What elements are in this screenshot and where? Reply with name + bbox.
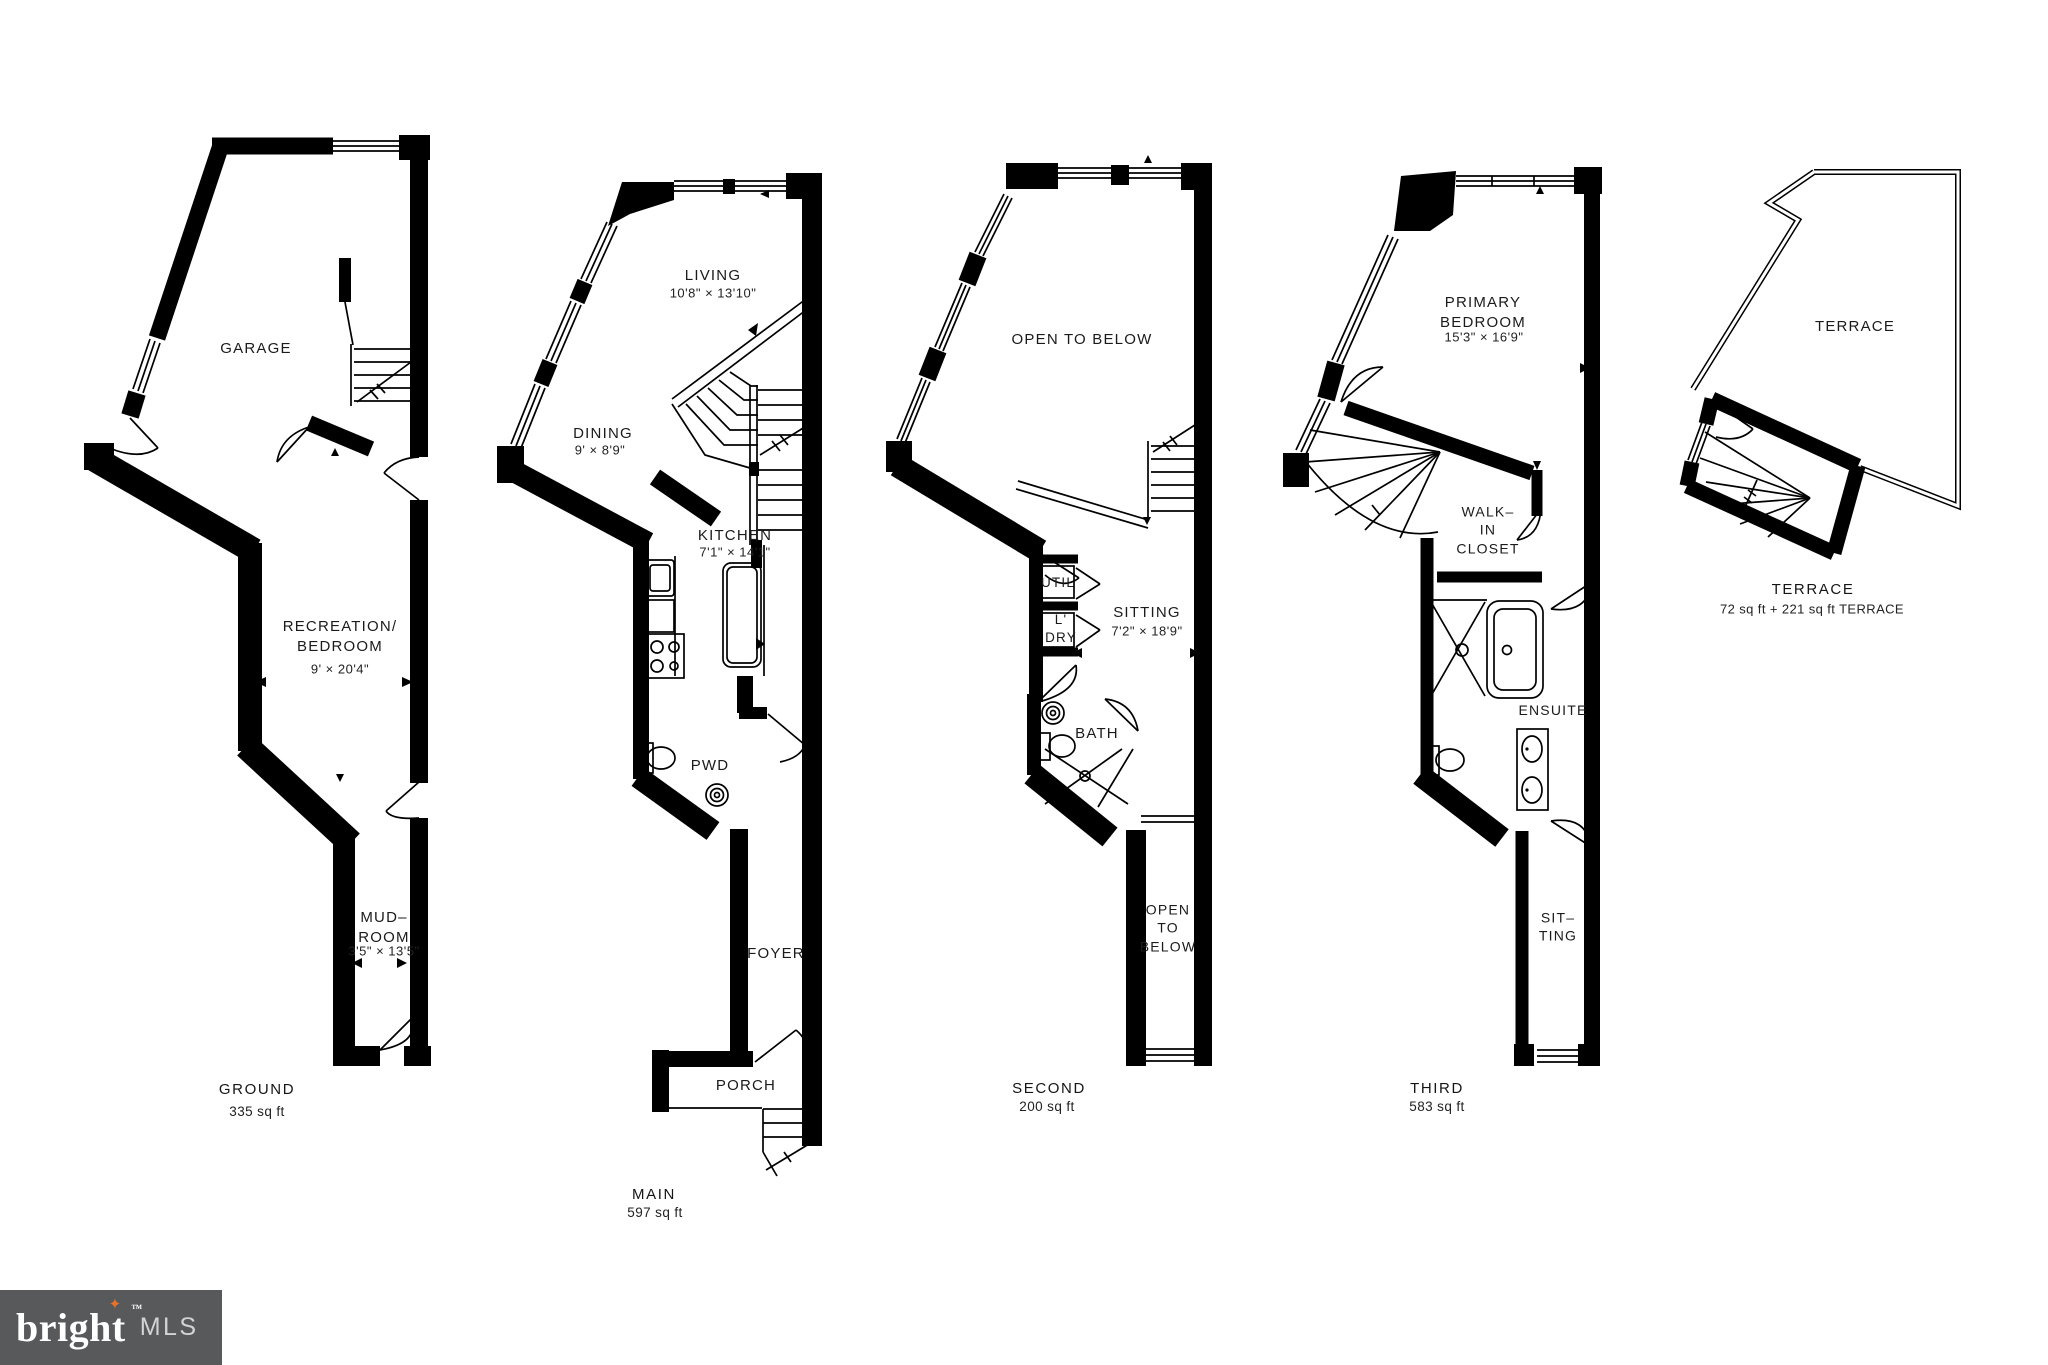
room-label-porch: PORCH (716, 1076, 776, 1096)
room-label-ldry: L' DRY (1045, 611, 1077, 647)
room-dims-sitting-second: 7'2" × 18'9" (1111, 622, 1182, 639)
brand-tm: ™ (131, 1304, 143, 1315)
room-label-util: UTIL (1041, 574, 1075, 592)
room-dims-recreation: 9' × 20'4" (311, 660, 369, 677)
brand-name: bright✦™ (16, 1308, 126, 1348)
plan-terrace (1687, 172, 1958, 553)
brand-mls: MLS (140, 1313, 199, 1342)
room-label-bath: BATH (1075, 724, 1119, 744)
room-label-walkin-closet: WALK– IN CLOSET (1456, 502, 1519, 557)
floor-name-ground: GROUND (219, 1080, 295, 1100)
brand-logo: bright✦™ MLS (0, 1290, 222, 1365)
room-label-pwd: PWD (691, 756, 730, 776)
room-label-terrace: TERRACE (1815, 317, 1895, 337)
room-dims-mudroom: 3'5" × 13'5" (348, 942, 419, 959)
room-dims-primary-bedroom: 15'3" × 16'9" (1445, 328, 1524, 345)
room-label-open-corridor: OPEN TO BELOW (1140, 900, 1197, 955)
floor-area-second: 200 sq ft (1019, 1098, 1074, 1116)
star-icon: ✦ (109, 1297, 122, 1312)
room-label-living: LIVING (685, 266, 741, 286)
room-label-foyer: FOYER (747, 944, 805, 964)
room-label-ensuite: ENSUITE (1518, 701, 1587, 719)
room-label-garage: GARAGE (220, 339, 291, 359)
room-label-sitting-third: SIT– TING (1539, 909, 1577, 946)
room-dims-kitchen: 7'1" × 14'1" (699, 543, 770, 560)
room-label-open-to-below: OPEN TO BELOW (1012, 330, 1153, 350)
floor-name-second: SECOND (1012, 1079, 1086, 1099)
room-dims-living: 10'8" × 13'10" (670, 284, 757, 301)
floor-name-main: MAIN (632, 1185, 676, 1205)
floor-area-third: 583 sq ft (1409, 1098, 1464, 1116)
floorplan-drawing (0, 0, 2048, 1365)
floor-name-third: THIRD (1410, 1079, 1464, 1099)
floor-area-ground: 335 sq ft (229, 1103, 284, 1121)
room-label-primary-bedroom: PRIMARY BEDROOM (1440, 293, 1526, 333)
floorplan-page: GARAGE RECREATION/ BEDROOM 9' × 20'4" MU… (0, 0, 2048, 1365)
floor-area-terrace: 72 sq ft + 221 sq ft TERRACE (1720, 600, 1904, 617)
plan-main (497, 173, 822, 1176)
floor-area-main: 597 sq ft (627, 1204, 682, 1222)
room-label-recreation: RECREATION/ BEDROOM (283, 617, 398, 657)
room-label-sitting-second: SITTING (1113, 603, 1181, 623)
room-dims-dining: 9' × 8'9" (575, 441, 626, 458)
floor-name-terrace: TERRACE (1772, 580, 1855, 600)
